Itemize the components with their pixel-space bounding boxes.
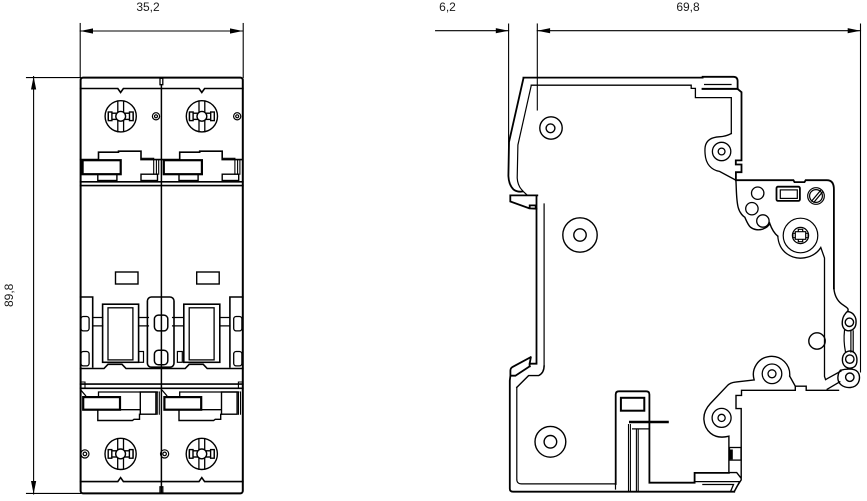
svg-text:35,2: 35,2: [136, 0, 160, 14]
svg-text:89,8: 89,8: [2, 283, 16, 307]
svg-text:69,8: 69,8: [676, 0, 700, 14]
svg-text:6,2: 6,2: [439, 0, 456, 14]
